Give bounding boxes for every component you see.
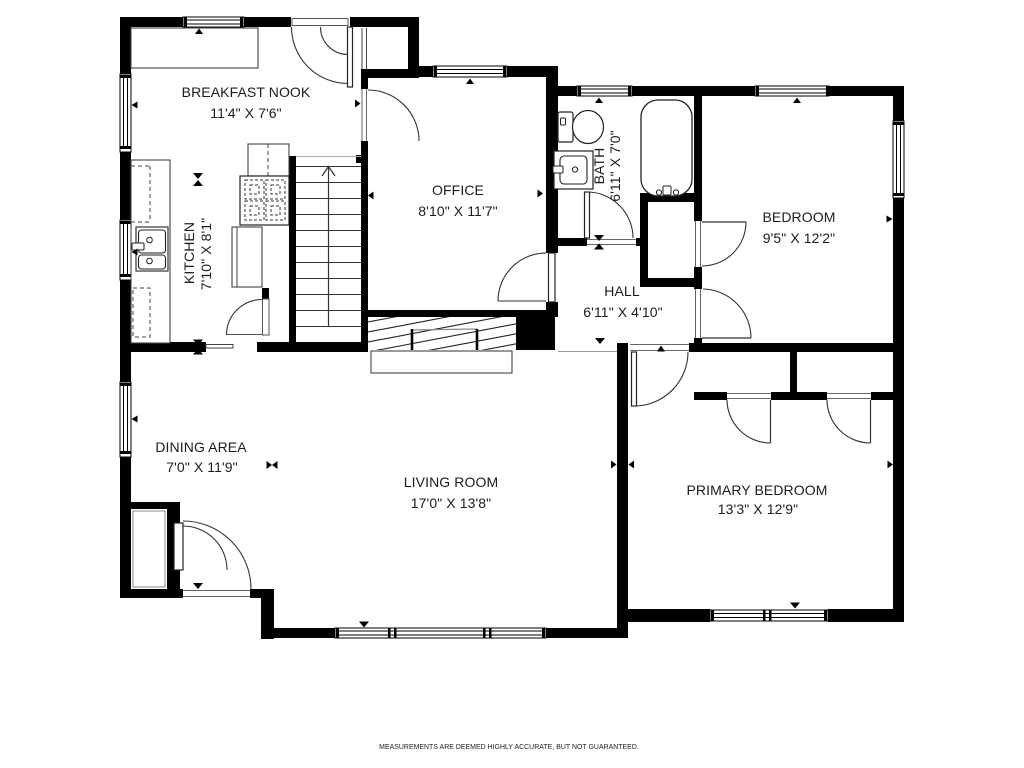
svg-text:BATH: BATH [591, 148, 607, 185]
svg-text:BEDROOM: BEDROOM [762, 209, 835, 225]
svg-text:11'4" X 7'6": 11'4" X 7'6" [210, 105, 282, 121]
svg-text:BREAKFAST NOOK: BREAKFAST NOOK [182, 84, 311, 100]
svg-text:7'10" X 8'1": 7'10" X 8'1" [198, 218, 214, 291]
svg-text:9'5" X 12'2": 9'5" X 12'2" [763, 230, 836, 246]
svg-text:KITCHEN: KITCHEN [181, 222, 197, 284]
svg-text:8'10" X 11'7": 8'10" X 11'7" [418, 203, 497, 219]
svg-text:PRIMARY BEDROOM: PRIMARY BEDROOM [686, 482, 827, 498]
svg-text:17'0" X 13'8": 17'0" X 13'8" [411, 495, 491, 511]
svg-text:13'3" X 12'9": 13'3" X 12'9" [718, 501, 798, 517]
svg-text:MEASUREMENTS ARE DEEMED HIGHLY: MEASUREMENTS ARE DEEMED HIGHLY ACCURATE,… [379, 744, 639, 751]
svg-text:6'11" X 4'10": 6'11" X 4'10" [583, 304, 662, 320]
svg-text:7'0" X 11'9": 7'0" X 11'9" [166, 459, 238, 475]
svg-text:HALL: HALL [604, 283, 640, 299]
svg-text:OFFICE: OFFICE [432, 182, 484, 198]
svg-text:DINING AREA: DINING AREA [155, 439, 247, 455]
svg-text:6'11" X 7'0": 6'11" X 7'0" [607, 130, 623, 202]
svg-text:LIVING ROOM: LIVING ROOM [404, 474, 498, 490]
